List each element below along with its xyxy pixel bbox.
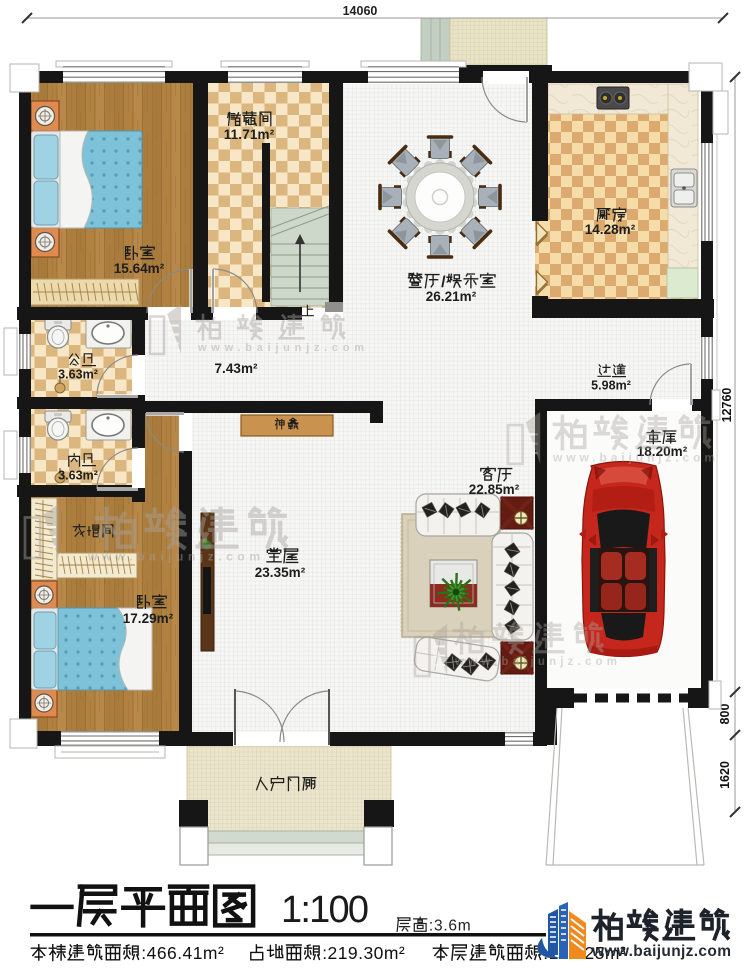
svg-text:1620: 1620 (718, 761, 732, 789)
svg-text:7.43m²: 7.43m² (215, 361, 259, 376)
svg-text:12760: 12760 (720, 388, 734, 423)
svg-text:5.98m²: 5.98m² (591, 379, 631, 393)
svg-text:14060: 14060 (343, 4, 378, 18)
svg-text::219.30m²: :219.30m² (322, 943, 405, 963)
svg-text:22.85m²: 22.85m² (469, 482, 520, 497)
svg-text:26.21m²: 26.21m² (426, 289, 477, 304)
svg-text:14.28m²: 14.28m² (585, 222, 636, 237)
svg-text:3.63m²: 3.63m² (58, 469, 98, 483)
svg-text:15.64m²: 15.64m² (114, 261, 165, 276)
svg-text:1:100: 1:100 (281, 889, 369, 931)
svg-text::466.41m²: :466.41m² (141, 943, 224, 963)
svg-text::3.6m: :3.6m (429, 917, 471, 934)
svg-text:17.29m²: 17.29m² (123, 611, 174, 626)
svg-text:23.35m²: 23.35m² (255, 565, 306, 580)
svg-text:www.baijunjz.com: www.baijunjz.com (591, 943, 731, 960)
svg-text:3.63m²: 3.63m² (58, 368, 98, 382)
svg-text:11.71m²: 11.71m² (224, 127, 275, 142)
